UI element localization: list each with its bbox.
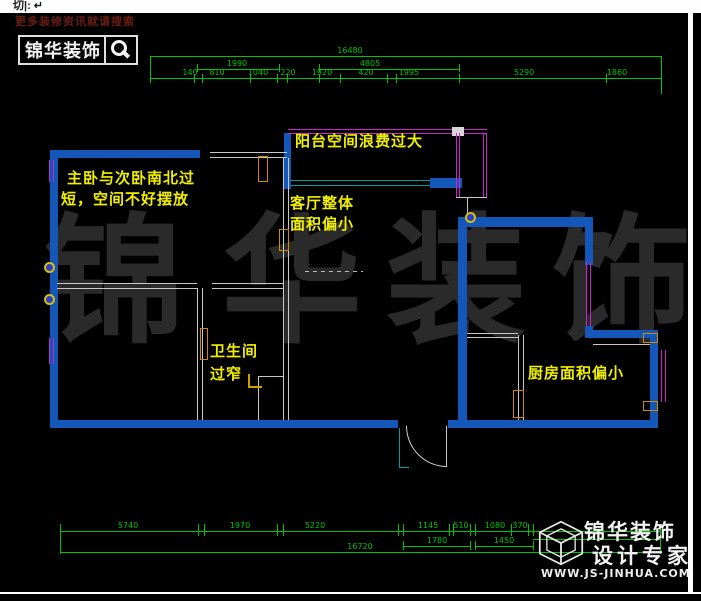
door-leaf-entrance xyxy=(446,426,447,466)
dim-tick xyxy=(661,74,662,83)
watermark-char: 装 xyxy=(386,212,526,352)
dim-tick xyxy=(202,74,203,83)
dim-label: 1990 xyxy=(227,60,247,68)
dim-line xyxy=(403,546,470,547)
outlet-symbol xyxy=(44,262,55,273)
dim-label: 370 xyxy=(512,522,527,530)
dim-line xyxy=(150,56,662,57)
wall-bottom-right xyxy=(448,420,658,428)
window-bay-left xyxy=(456,133,460,197)
wall-upper-right xyxy=(458,217,593,227)
partition-bay-cap xyxy=(456,197,487,198)
dim-label: 16720 xyxy=(347,543,372,551)
outlet-symbol xyxy=(465,212,476,223)
wall-bottom-left xyxy=(50,420,398,428)
dim-tick xyxy=(475,524,476,536)
window-west-upper xyxy=(49,160,54,182)
door-arc-entrance xyxy=(406,426,447,467)
partition-center xyxy=(283,158,289,420)
entrance-jamb-line xyxy=(399,428,400,468)
beam-dashed-line xyxy=(305,271,363,272)
dim-tick xyxy=(475,541,476,550)
note-bath-line1: 卫生间 xyxy=(210,344,258,360)
dim-label: 16480 xyxy=(337,47,362,55)
dim-label: 420 xyxy=(358,69,373,77)
dim-tick xyxy=(197,64,198,72)
dim-tick xyxy=(403,541,404,550)
right-border xyxy=(688,13,693,592)
dim-label: 810 xyxy=(209,69,224,77)
dim-tick xyxy=(470,524,471,536)
door-corner-bath xyxy=(248,374,262,388)
note-living-line2: 面积偏小 xyxy=(290,217,354,233)
search-icon xyxy=(106,37,136,63)
promo-text: 更多装修资讯就请搜索 xyxy=(15,16,135,28)
dim-tick xyxy=(533,541,534,550)
dim-line xyxy=(475,546,533,547)
dim-tick xyxy=(459,74,460,83)
top-bar xyxy=(0,0,701,13)
dim-line xyxy=(150,78,662,79)
dim-tick xyxy=(319,64,320,72)
wall-top xyxy=(50,150,200,158)
dim-label: 5220 xyxy=(305,522,325,530)
wall-right-upper xyxy=(585,217,593,265)
note-bedroom-line1: 主卧与次卧南北过 xyxy=(67,171,195,187)
balcony-slider-line xyxy=(291,185,430,186)
footer-logo-url: WWW.JS-JINHUA.COM xyxy=(541,567,691,580)
cad-floorplan-image: 切|: ↵ 更多装修资讯就请搜索 锦华装饰 锦 华 装 饰 16480 1990… xyxy=(0,0,701,601)
dim-tick xyxy=(403,524,404,536)
dim-tick xyxy=(459,64,460,72)
partition-bedroom-divider xyxy=(212,283,283,289)
dim-tick xyxy=(283,524,284,536)
dim-label: 5740 xyxy=(118,522,138,530)
dim-tick xyxy=(279,64,280,72)
door-frame-hall xyxy=(279,229,289,251)
dim-tick xyxy=(511,524,512,536)
dim-line xyxy=(319,69,460,70)
dim-tick xyxy=(449,524,450,536)
command-line-text: 切|: ↵ xyxy=(13,0,43,13)
bottom-border xyxy=(0,592,701,594)
balcony-slider-line xyxy=(291,180,430,181)
dim-tick xyxy=(198,524,199,536)
window-east xyxy=(586,262,591,326)
dim-tick xyxy=(287,74,288,83)
dim-tick xyxy=(528,524,529,536)
window-bay-right xyxy=(483,133,487,197)
watermark-char: 锦 xyxy=(44,212,184,352)
dim-tick xyxy=(396,74,397,83)
watermark-char: 华 xyxy=(222,212,362,352)
dim-tick xyxy=(398,524,399,536)
wall-kitchen-right xyxy=(650,330,658,428)
wall-left xyxy=(50,152,58,428)
top-logo: 锦华装饰 xyxy=(18,35,138,65)
dim-tick xyxy=(204,524,205,536)
dim-label: 5290 xyxy=(514,69,534,77)
door-frame-bedroom xyxy=(258,156,268,182)
dim-tick xyxy=(277,74,278,83)
door-frame-kitchen xyxy=(513,390,524,418)
entrance-jamb-line xyxy=(399,467,409,468)
dim-label: 510 xyxy=(453,522,468,530)
note-bedroom-line2: 短，空间不好摆放 xyxy=(61,192,189,208)
dim-label: 1780 xyxy=(427,537,447,545)
cube-logo-icon xyxy=(538,516,584,570)
partition-bedroom-divider xyxy=(57,283,197,289)
dim-tick xyxy=(606,74,607,83)
footer-logo-line2: 设计专家 xyxy=(592,540,692,570)
dim-tick xyxy=(60,524,61,536)
dim-tick xyxy=(277,524,278,536)
dim-tick xyxy=(194,74,195,83)
dim-label: 1970 xyxy=(230,522,250,530)
dim-tick xyxy=(453,524,454,536)
dim-label: 1860 xyxy=(607,69,627,77)
dim-label: 1920 xyxy=(312,69,332,77)
door-corner-kitchen xyxy=(643,401,658,411)
note-living-line1: 客厅整体 xyxy=(290,196,354,212)
dim-tick xyxy=(470,541,471,550)
dim-label: 220 xyxy=(280,69,295,77)
dim-tick xyxy=(533,524,534,536)
dim-tick xyxy=(150,74,151,83)
note-bath-line2: 过窄 xyxy=(210,367,242,383)
note-balcony: 阳台空间浪费过大 xyxy=(295,134,423,150)
dim-label: 1080 xyxy=(485,522,505,530)
door-corner-kitchen xyxy=(643,333,658,343)
dim-label: 1145 xyxy=(418,522,438,530)
footer-logo: 锦华装饰 设计专家 WWW.JS-JINHUA.COM xyxy=(538,510,698,584)
window-kitchen xyxy=(661,350,666,402)
dim-tick xyxy=(387,74,388,83)
dim-tick xyxy=(319,74,320,83)
dim-label: 1995 xyxy=(399,69,419,77)
door-frame-bath xyxy=(200,328,208,360)
kitchen-sill-line xyxy=(593,344,650,345)
partition-top xyxy=(210,152,287,158)
top-logo-text: 锦华装饰 xyxy=(20,37,104,63)
partition-corridor xyxy=(467,333,518,338)
note-kitchen: 厨房面积偏小 xyxy=(528,366,624,382)
wall-living-right xyxy=(458,217,467,428)
dim-tick xyxy=(340,74,341,83)
dim-label: 140 xyxy=(182,69,197,77)
outlet-symbol xyxy=(44,294,55,305)
dim-tick xyxy=(250,74,251,83)
window-west-lower xyxy=(49,338,54,364)
dim-label: 1450 xyxy=(494,537,514,545)
dim-label: 4805 xyxy=(360,60,380,68)
